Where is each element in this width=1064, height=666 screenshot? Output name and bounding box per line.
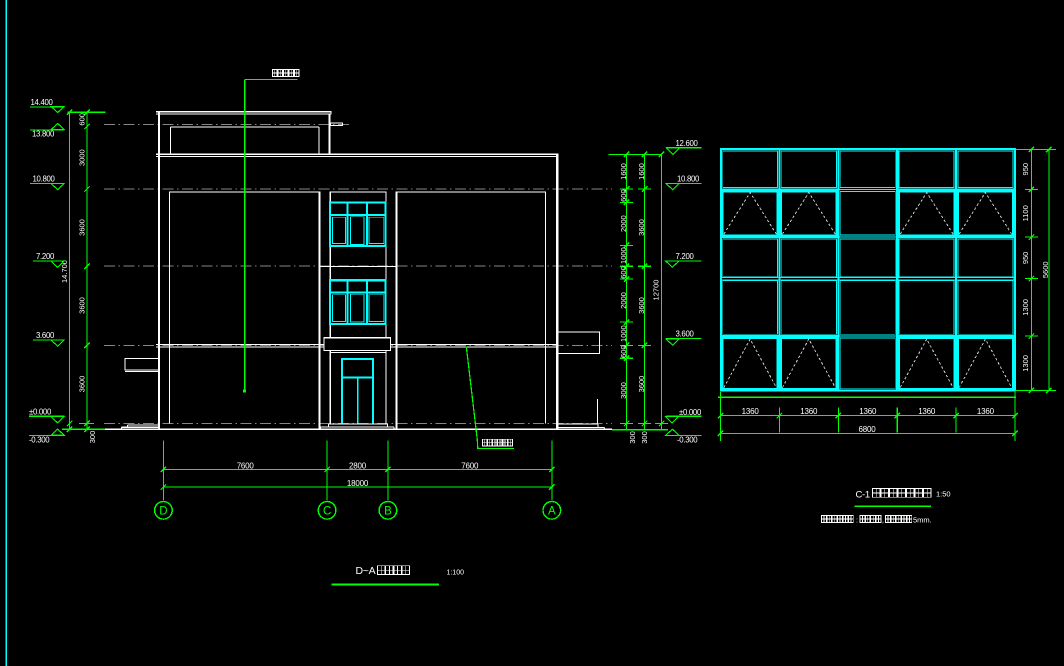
svg-text:300: 300: [640, 431, 649, 444]
svg-text:10.800: 10.800: [677, 175, 700, 184]
svg-text:1000: 1000: [619, 247, 628, 264]
svg-text:-0.300: -0.300: [29, 435, 50, 444]
svg-text:1360: 1360: [800, 407, 818, 416]
svg-text:3600: 3600: [78, 376, 87, 393]
svg-text:7600: 7600: [237, 461, 255, 470]
svg-text:2000: 2000: [619, 292, 628, 309]
svg-text:3600: 3600: [637, 219, 646, 236]
svg-text:600: 600: [619, 345, 628, 358]
svg-text:1360: 1360: [977, 407, 995, 416]
svg-text:18000: 18000: [347, 479, 369, 488]
svg-text:950: 950: [1021, 252, 1030, 265]
svg-text:5mm.: 5mm.: [913, 515, 932, 524]
svg-text:3600: 3600: [78, 297, 87, 314]
svg-text:12.600: 12.600: [676, 139, 699, 148]
svg-text:6800: 6800: [859, 425, 877, 434]
svg-text:13.800: 13.800: [32, 130, 55, 139]
svg-text:600: 600: [619, 266, 628, 279]
svg-text:3600: 3600: [78, 219, 87, 236]
svg-text:300: 300: [628, 431, 637, 444]
svg-text::: :: [856, 517, 858, 524]
svg-text:3000: 3000: [619, 382, 628, 399]
svg-text:10.800: 10.800: [33, 175, 56, 184]
svg-text:3600: 3600: [637, 376, 646, 393]
svg-text:2000: 2000: [619, 215, 628, 232]
svg-text:5600: 5600: [1041, 261, 1050, 278]
svg-text:2800: 2800: [349, 461, 367, 470]
svg-text:C-1: C-1: [856, 489, 870, 500]
svg-text:1300: 1300: [1021, 299, 1030, 316]
svg-text:600: 600: [78, 113, 87, 126]
svg-text:A: A: [548, 505, 556, 517]
svg-text:3.600: 3.600: [676, 330, 695, 339]
svg-text:C: C: [323, 505, 331, 517]
svg-text:D~A: D~A: [356, 565, 376, 577]
svg-text:14.400: 14.400: [31, 98, 54, 107]
svg-text:3600: 3600: [637, 297, 646, 314]
svg-text:B: B: [384, 505, 392, 517]
svg-text:7.200: 7.200: [36, 252, 55, 261]
svg-text:950: 950: [1021, 163, 1030, 176]
svg-text:3.600: 3.600: [36, 331, 55, 340]
svg-text:±0.000: ±0.000: [679, 408, 702, 417]
svg-text:7.200: 7.200: [676, 252, 695, 261]
svg-text:1:100: 1:100: [447, 569, 465, 576]
svg-text:,: ,: [882, 517, 884, 524]
svg-text:1:50: 1:50: [936, 489, 951, 498]
svg-text:7600: 7600: [461, 461, 479, 470]
svg-text:12700: 12700: [651, 280, 660, 301]
svg-text:-0.300: -0.300: [677, 436, 698, 445]
svg-text:1300: 1300: [1021, 355, 1030, 372]
svg-text:1600: 1600: [637, 163, 646, 180]
svg-text:D: D: [159, 505, 167, 517]
svg-text:1360: 1360: [859, 407, 877, 416]
svg-text:1600: 1600: [619, 163, 628, 180]
svg-text:3000: 3000: [78, 149, 87, 166]
svg-text:1360: 1360: [918, 407, 936, 416]
svg-text:600: 600: [619, 189, 628, 202]
svg-text:300: 300: [88, 431, 97, 444]
svg-text:1000: 1000: [619, 325, 628, 342]
svg-text:1100: 1100: [1021, 205, 1030, 221]
svg-text:±0.000: ±0.000: [29, 408, 52, 417]
svg-text:1360: 1360: [742, 407, 760, 416]
